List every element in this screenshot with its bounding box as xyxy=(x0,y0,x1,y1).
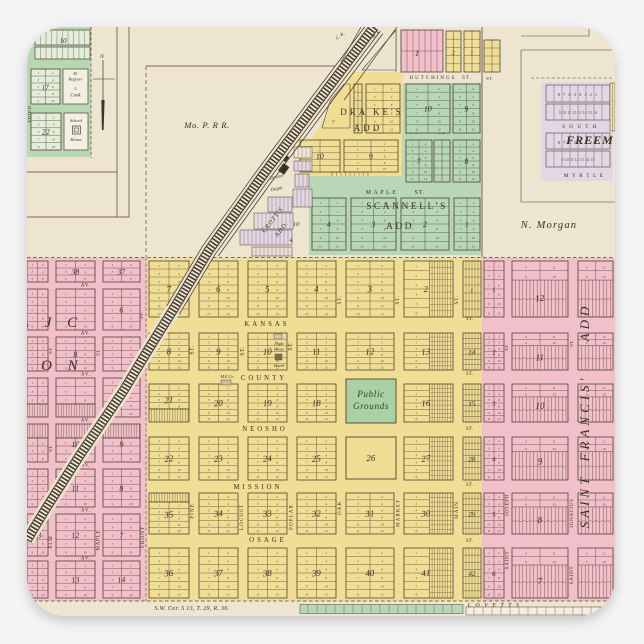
svg-text:DRA KE'S: DRA KE'S xyxy=(340,107,403,117)
svg-text:10: 10 xyxy=(603,502,607,506)
svg-text:12: 12 xyxy=(383,245,387,249)
svg-text:House: House xyxy=(273,347,284,352)
svg-text:11: 11 xyxy=(488,417,491,421)
svg-text:1: 1 xyxy=(470,286,474,294)
svg-text:10: 10 xyxy=(380,522,384,526)
svg-text:13: 13 xyxy=(356,312,360,316)
svg-text:37: 37 xyxy=(212,568,223,579)
svg-text:12: 12 xyxy=(177,475,181,479)
svg-text:Board: Board xyxy=(274,363,285,368)
svg-text:10: 10 xyxy=(129,593,133,597)
svg-text:POPLAR: POPLAR xyxy=(289,504,295,530)
svg-text:10: 10 xyxy=(51,99,55,103)
svg-text:12: 12 xyxy=(535,293,545,304)
svg-text:PINE: PINE xyxy=(190,503,196,519)
svg-text:ST.: ST. xyxy=(504,343,509,351)
svg-text:11: 11 xyxy=(416,128,419,132)
svg-text:10: 10 xyxy=(276,411,280,415)
svg-text:10: 10 xyxy=(435,236,439,240)
svg-text:24: 24 xyxy=(262,453,272,464)
svg-text:10: 10 xyxy=(129,551,133,555)
svg-text:12: 12 xyxy=(276,475,280,479)
svg-text:S.W. Cor. S 13, T. 29, R. 36.: S.W. Cor. S 13, T. 29, R. 36. xyxy=(155,606,230,612)
svg-text:8: 8 xyxy=(464,157,469,166)
svg-text:12: 12 xyxy=(177,593,181,597)
svg-text:10: 10 xyxy=(129,412,133,416)
svg-text:13: 13 xyxy=(305,312,309,316)
svg-text:12: 12 xyxy=(365,346,375,357)
svg-text:12: 12 xyxy=(71,531,80,541)
svg-text:12: 12 xyxy=(497,593,501,597)
svg-text:11: 11 xyxy=(603,440,606,444)
svg-text:12: 12 xyxy=(437,128,441,132)
svg-text:1: 1 xyxy=(492,286,496,294)
svg-text:12: 12 xyxy=(472,128,476,132)
svg-text:30: 30 xyxy=(420,508,431,519)
svg-text:26: 26 xyxy=(366,453,376,463)
svg-text:11: 11 xyxy=(158,475,161,479)
svg-text:18: 18 xyxy=(311,398,321,409)
svg-text:10: 10 xyxy=(52,145,56,149)
svg-text:MARKET: MARKET xyxy=(396,499,402,527)
svg-text:41: 41 xyxy=(421,568,431,579)
svg-text:NEOSHO: NEOSHO xyxy=(242,426,288,433)
svg-text:ST.: ST. xyxy=(240,346,246,356)
svg-text:17: 17 xyxy=(42,83,50,92)
svg-text:11: 11 xyxy=(553,335,556,339)
svg-text:12: 12 xyxy=(380,529,384,533)
svg-text:25: 25 xyxy=(311,453,321,464)
svg-text:11: 11 xyxy=(207,475,210,479)
svg-text:20: 20 xyxy=(213,398,223,409)
svg-text:1: 1 xyxy=(470,50,473,56)
svg-text:11: 11 xyxy=(458,128,461,132)
svg-text:37: 37 xyxy=(116,267,127,277)
svg-text:10: 10 xyxy=(227,411,231,415)
svg-text:12: 12 xyxy=(336,245,340,249)
svg-text:12: 12 xyxy=(325,593,329,597)
svg-text:10: 10 xyxy=(383,167,387,171)
svg-text:SAINT: SAINT xyxy=(577,474,592,529)
svg-text:12: 12 xyxy=(497,365,501,369)
svg-text:10: 10 xyxy=(336,236,340,240)
svg-text:ST.: ST. xyxy=(454,295,460,304)
svg-text:THIRD: THIRD xyxy=(27,105,32,123)
svg-text:ST.: ST. xyxy=(48,346,53,354)
svg-text:14: 14 xyxy=(117,575,126,585)
svg-text:4: 4 xyxy=(290,237,293,244)
svg-text:ST.: ST. xyxy=(462,76,472,81)
svg-text:ADD: ADD xyxy=(386,222,414,232)
svg-text:10: 10 xyxy=(552,392,556,396)
svg-text:10: 10 xyxy=(276,468,280,472)
svg-text:12: 12 xyxy=(227,365,231,369)
svg-text:23: 23 xyxy=(213,453,223,464)
svg-text:AV.: AV. xyxy=(81,284,91,289)
svg-text:10: 10 xyxy=(603,392,607,396)
svg-text:11: 11 xyxy=(603,552,606,556)
svg-text:ST.: ST. xyxy=(466,483,474,488)
svg-text:10: 10 xyxy=(276,296,280,300)
svg-text:10: 10 xyxy=(380,584,384,588)
svg-text:11: 11 xyxy=(305,475,308,479)
svg-text:27: 27 xyxy=(421,453,431,464)
svg-text:11: 11 xyxy=(357,593,360,597)
svg-text:12: 12 xyxy=(227,529,231,533)
svg-text:11: 11 xyxy=(603,386,606,390)
svg-text:S O U T H: S O U T H xyxy=(562,124,598,130)
svg-text:JOSEPH: JOSEPH xyxy=(506,494,511,517)
svg-text:11: 11 xyxy=(207,593,210,597)
svg-text:12: 12 xyxy=(435,245,439,249)
svg-text:9: 9 xyxy=(369,152,374,161)
svg-text:13: 13 xyxy=(421,346,431,357)
svg-text:42: 42 xyxy=(468,570,476,579)
svg-text:12: 12 xyxy=(276,529,280,533)
svg-text:J.: J. xyxy=(74,86,77,91)
svg-text:10: 10 xyxy=(177,584,181,588)
svg-text:12: 12 xyxy=(325,529,329,533)
svg-text:FRANCIS': FRANCIS' xyxy=(577,375,592,463)
svg-text:AV.: AV. xyxy=(81,332,91,337)
svg-text:11: 11 xyxy=(305,304,308,308)
svg-text:11: 11 xyxy=(158,593,161,597)
svg-text:8 7 6 5 4 3 2 1: 8 7 6 5 4 3 2 1 xyxy=(558,92,598,97)
svg-text:12: 12 xyxy=(325,417,329,421)
svg-text:10: 10 xyxy=(325,522,329,526)
svg-text:ST.: ST. xyxy=(48,444,53,452)
svg-text:11: 11 xyxy=(256,593,259,597)
svg-text:HUTCHINGS: HUTCHINGS xyxy=(410,76,457,81)
svg-text:12: 12 xyxy=(497,529,501,533)
svg-text:ELM: ELM xyxy=(49,536,54,549)
svg-text:10: 10 xyxy=(227,468,231,472)
svg-text:11: 11 xyxy=(207,529,210,533)
svg-text:10: 10 xyxy=(84,551,88,555)
svg-text:10: 10 xyxy=(177,529,181,533)
svg-text:10: 10 xyxy=(316,152,325,162)
svg-text:FRONT: FRONT xyxy=(140,526,146,548)
svg-text:11: 11 xyxy=(488,311,491,315)
svg-text:12: 12 xyxy=(380,304,384,308)
svg-text:11: 11 xyxy=(71,484,79,493)
svg-text:10: 10 xyxy=(227,359,231,363)
svg-text:13: 13 xyxy=(256,312,260,316)
svg-text:10: 10 xyxy=(383,236,387,240)
svg-text:M.E.Co: M.E.Co xyxy=(219,374,233,379)
svg-text:12: 12 xyxy=(227,417,231,421)
svg-text:MISSION: MISSION xyxy=(234,484,283,491)
svg-text:11: 11 xyxy=(256,417,259,421)
svg-text:10: 10 xyxy=(472,120,476,124)
svg-text:11: 11 xyxy=(603,265,606,269)
svg-text:AV.: AV. xyxy=(81,509,91,514)
svg-text:11: 11 xyxy=(305,593,308,597)
svg-text:11: 11 xyxy=(158,304,161,308)
svg-text:10: 10 xyxy=(227,522,231,526)
svg-text:10: 10 xyxy=(552,341,556,345)
svg-text:10: 10 xyxy=(60,37,68,45)
svg-text:10: 10 xyxy=(552,275,556,279)
svg-text:Public: Public xyxy=(356,389,385,399)
svg-text:10: 10 xyxy=(603,275,607,279)
svg-text:39: 39 xyxy=(310,568,321,579)
svg-text:I O N: I O N xyxy=(19,358,83,374)
svg-text:7: 7 xyxy=(332,120,335,126)
svg-text:11: 11 xyxy=(535,352,544,363)
svg-text:ST.: ST. xyxy=(337,295,343,304)
svg-text:10: 10 xyxy=(552,447,556,451)
svg-text:12: 12 xyxy=(497,311,501,315)
svg-text:10: 10 xyxy=(497,359,501,363)
svg-text:SCANNELL'S: SCANNELL'S xyxy=(366,202,448,212)
svg-text:4: 4 xyxy=(327,220,332,229)
svg-text:OAK: OAK xyxy=(337,501,343,515)
svg-text:N: N xyxy=(99,54,104,60)
svg-text:OSAGE: OSAGE xyxy=(249,537,287,544)
svg-text:ST.: ST. xyxy=(414,190,425,196)
svg-text:22: 22 xyxy=(42,127,51,137)
svg-text:AV.: AV. xyxy=(81,557,91,562)
svg-text:11: 11 xyxy=(553,552,556,556)
svg-text:14: 14 xyxy=(468,348,476,357)
svg-text:10: 10 xyxy=(380,359,384,363)
svg-text:11: 11 xyxy=(312,346,321,357)
svg-text:LOCUST: LOCUST xyxy=(239,504,245,530)
svg-text:ADD: ADD xyxy=(577,303,592,343)
svg-text:12: 12 xyxy=(276,304,280,308)
svg-text:14: 14 xyxy=(276,312,280,316)
svg-text:ST.: ST. xyxy=(190,345,196,355)
svg-text:11: 11 xyxy=(553,386,556,390)
svg-text:10: 10 xyxy=(536,401,546,411)
svg-text:11: 11 xyxy=(488,529,491,533)
svg-text:10: 10 xyxy=(41,551,45,555)
svg-text:10: 10 xyxy=(177,359,181,363)
svg-text:12: 12 xyxy=(227,304,231,308)
svg-text:ST.: ST. xyxy=(466,372,474,377)
svg-text:10: 10 xyxy=(472,170,476,174)
svg-text:10: 10 xyxy=(325,296,329,300)
svg-text:14: 14 xyxy=(227,312,231,316)
svg-text:10: 10 xyxy=(424,104,433,114)
svg-text:10: 10 xyxy=(84,593,88,597)
svg-text:10: 10 xyxy=(380,296,384,300)
svg-text:21: 21 xyxy=(164,395,174,406)
svg-text:12: 12 xyxy=(380,593,384,597)
svg-text:10: 10 xyxy=(325,468,329,472)
svg-text:10: 10 xyxy=(552,502,556,506)
svg-text:12: 12 xyxy=(227,593,231,597)
svg-text:10: 10 xyxy=(227,584,231,588)
svg-text:N. Morgan: N. Morgan xyxy=(520,220,578,231)
svg-text:10: 10 xyxy=(41,593,45,597)
svg-text:11: 11 xyxy=(458,177,461,181)
svg-text:9 10 11 12 13 14 15: 9 10 11 12 13 14 15 xyxy=(561,158,594,162)
svg-text:10: 10 xyxy=(276,584,280,588)
svg-text:10: 10 xyxy=(129,325,133,329)
svg-text:ST.: ST. xyxy=(96,348,101,356)
svg-text:11: 11 xyxy=(488,475,491,479)
svg-text:12: 12 xyxy=(424,177,428,181)
svg-text:9: 9 xyxy=(538,457,543,467)
svg-text:11: 11 xyxy=(553,440,556,444)
svg-text:32: 32 xyxy=(310,508,321,519)
svg-text:14: 14 xyxy=(325,312,329,316)
svg-text:28: 28 xyxy=(468,455,476,464)
svg-text:House: House xyxy=(69,137,81,142)
svg-text:19: 19 xyxy=(262,398,272,409)
svg-text:35: 35 xyxy=(163,509,174,520)
svg-text:10: 10 xyxy=(603,560,607,564)
svg-text:FREEM: FREEM xyxy=(565,133,614,147)
svg-text:10: 10 xyxy=(293,221,300,228)
svg-text:10: 10 xyxy=(325,584,329,588)
svg-text:36: 36 xyxy=(163,568,174,579)
svg-text:1: 1 xyxy=(465,220,470,229)
svg-text:12: 12 xyxy=(497,475,501,479)
svg-text:10: 10 xyxy=(84,502,88,506)
svg-text:ST.: ST. xyxy=(466,427,474,432)
svg-text:33: 33 xyxy=(261,508,272,519)
svg-text:1: 1 xyxy=(415,48,419,58)
svg-text:10: 10 xyxy=(325,359,329,363)
svg-text:ST.: ST. xyxy=(486,76,494,81)
svg-text:ST.: ST. xyxy=(569,339,574,347)
svg-text:8: 8 xyxy=(119,484,124,493)
svg-text:15: 15 xyxy=(468,400,476,409)
svg-text:12: 12 xyxy=(325,475,329,479)
svg-text:Register: Register xyxy=(68,77,83,82)
svg-text:9: 9 xyxy=(464,104,469,113)
svg-text:AV.: AV. xyxy=(81,419,91,424)
svg-text:11: 11 xyxy=(459,245,462,249)
svg-text:MAIN: MAIN xyxy=(454,501,460,519)
svg-text:14: 14 xyxy=(380,312,384,316)
svg-text:10: 10 xyxy=(552,560,556,564)
svg-text:12: 12 xyxy=(276,593,280,597)
svg-text:COUNTY: COUNTY xyxy=(241,375,287,382)
svg-text:13: 13 xyxy=(157,312,161,316)
svg-text:38: 38 xyxy=(70,267,80,277)
svg-text:10: 10 xyxy=(603,341,607,345)
svg-text:10: 10 xyxy=(497,584,501,588)
svg-text:ST.: ST. xyxy=(466,317,474,322)
svg-text:11: 11 xyxy=(357,365,360,369)
svg-text:40: 40 xyxy=(365,568,375,579)
svg-text:11: 11 xyxy=(361,245,364,249)
svg-text:11: 11 xyxy=(412,245,415,249)
svg-text:Engle: Engle xyxy=(273,341,284,346)
svg-text:11: 11 xyxy=(256,529,259,533)
svg-text:Cook: Cook xyxy=(70,94,81,99)
svg-text:11: 11 xyxy=(207,365,210,369)
svg-text:12: 12 xyxy=(325,304,329,308)
svg-text:11: 11 xyxy=(256,475,259,479)
svg-text:9: 9 xyxy=(120,440,124,449)
svg-text:10: 10 xyxy=(472,236,476,240)
svg-text:11: 11 xyxy=(553,495,556,499)
svg-text:SAINT: SAINT xyxy=(506,551,511,570)
svg-text:11: 11 xyxy=(357,529,360,533)
svg-text:2: 2 xyxy=(452,50,455,56)
svg-text:M.: M. xyxy=(72,71,78,76)
svg-text:10: 10 xyxy=(84,366,88,370)
svg-text:11: 11 xyxy=(603,495,606,499)
svg-text:Mo. P. R R.: Mo. P. R R. xyxy=(183,120,230,130)
svg-text:10: 10 xyxy=(603,447,607,451)
svg-text:12: 12 xyxy=(227,475,231,479)
svg-text:10: 10 xyxy=(227,296,231,300)
svg-text:11: 11 xyxy=(553,265,556,269)
svg-text:12: 12 xyxy=(325,365,329,369)
svg-text:M Y R T L E: M Y R T L E xyxy=(564,173,604,179)
svg-text:11: 11 xyxy=(207,417,210,421)
svg-text:SAINT: SAINT xyxy=(570,566,575,585)
svg-text:9 10 11 12 13 14 15 16: 9 10 11 12 13 14 15 16 xyxy=(559,111,597,115)
svg-text:11: 11 xyxy=(305,365,308,369)
svg-text:16: 16 xyxy=(421,398,431,409)
svg-text:31: 31 xyxy=(364,508,375,519)
svg-text:10: 10 xyxy=(437,120,441,124)
svg-text:12: 12 xyxy=(380,365,384,369)
svg-text:11: 11 xyxy=(207,304,210,308)
svg-text:IGNATIUS: IGNATIUS xyxy=(570,498,575,527)
svg-text:12: 12 xyxy=(177,365,181,369)
svg-text:11: 11 xyxy=(305,529,308,533)
svg-text:10: 10 xyxy=(84,325,88,329)
svg-text:12: 12 xyxy=(276,417,280,421)
svg-text:School: School xyxy=(70,118,83,123)
svg-text:11: 11 xyxy=(411,177,414,181)
svg-text:KANSAS: KANSAS xyxy=(244,321,289,328)
svg-text:10: 10 xyxy=(497,468,501,472)
svg-text:ST.: ST. xyxy=(466,539,474,544)
svg-text:10: 10 xyxy=(424,170,428,174)
svg-text:12: 12 xyxy=(472,245,476,249)
svg-text:10: 10 xyxy=(177,468,181,472)
svg-text:2: 2 xyxy=(423,220,428,229)
svg-text:10: 10 xyxy=(497,411,501,415)
svg-text:11: 11 xyxy=(256,365,259,369)
svg-text:10: 10 xyxy=(390,120,394,124)
svg-text:38: 38 xyxy=(261,568,272,579)
svg-text:13: 13 xyxy=(207,312,211,316)
svg-text:6: 6 xyxy=(119,305,124,314)
svg-text:11: 11 xyxy=(357,304,360,308)
svg-text:L J C: L J C xyxy=(20,315,83,331)
svg-text:11: 11 xyxy=(488,593,491,597)
svg-text:MAPLE: MAPLE xyxy=(366,190,399,196)
svg-text:12: 12 xyxy=(390,128,394,132)
svg-text:11: 11 xyxy=(305,417,308,421)
svg-text:MAPLE: MAPLE xyxy=(97,530,102,551)
svg-text:11: 11 xyxy=(319,245,322,249)
svg-text:10: 10 xyxy=(497,522,501,526)
svg-text:10: 10 xyxy=(129,502,133,506)
svg-text:11: 11 xyxy=(256,304,259,308)
svg-text:ST.: ST. xyxy=(288,341,294,351)
svg-text:12: 12 xyxy=(497,417,501,421)
svg-text:Grounds: Grounds xyxy=(353,401,389,411)
svg-text:29: 29 xyxy=(468,510,476,519)
svg-text:11: 11 xyxy=(603,335,606,339)
svg-text:34: 34 xyxy=(212,508,223,519)
svg-text:10: 10 xyxy=(262,346,272,357)
svg-text:10: 10 xyxy=(276,522,280,526)
svg-text:ADD: ADD xyxy=(354,123,383,133)
svg-text:12: 12 xyxy=(472,177,476,181)
